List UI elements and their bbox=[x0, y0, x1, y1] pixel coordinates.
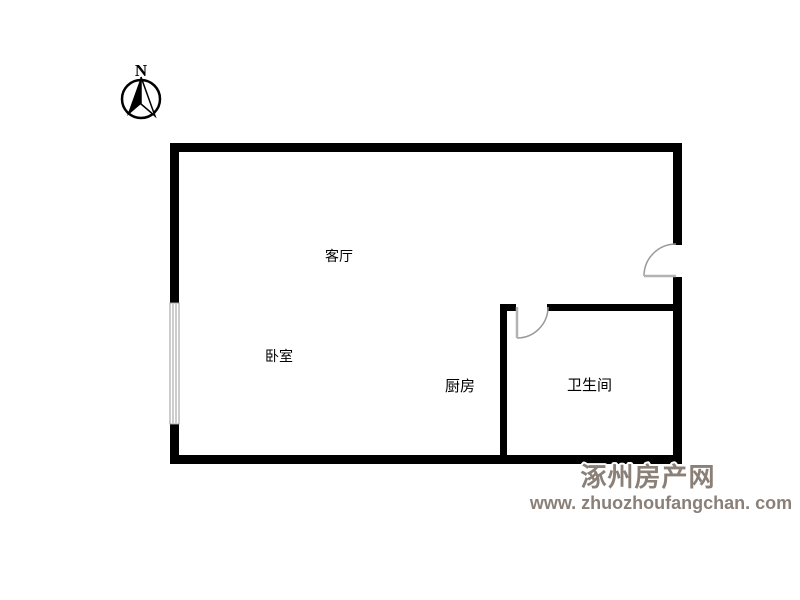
room-label-living-room: 客厅 bbox=[325, 248, 353, 264]
floor-plan-canvas: N bbox=[0, 0, 800, 600]
room-label-bathroom: 卫生间 bbox=[567, 377, 612, 394]
bathroom-wall-horizontal-right bbox=[547, 304, 682, 311]
wall-north bbox=[170, 143, 682, 152]
floor-plan-page: N bbox=[0, 0, 800, 600]
bathroom-door bbox=[517, 307, 548, 338]
watermark-site-url: www. zhuozhoufangchan. com bbox=[529, 493, 792, 513]
wall-west-upper bbox=[170, 143, 179, 303]
room-label-bedroom: 卧室 bbox=[265, 348, 293, 364]
wall-east-upper bbox=[673, 143, 682, 245]
window-frame bbox=[170, 303, 179, 424]
compass: N bbox=[122, 61, 160, 118]
outer-walls bbox=[170, 143, 682, 464]
bathroom-door-arc bbox=[517, 307, 548, 338]
watermark-site-name: 涿州房产网 bbox=[580, 462, 715, 492]
room-label-kitchen: 厨房 bbox=[445, 378, 475, 395]
entry-door-arc bbox=[644, 244, 676, 276]
window bbox=[170, 303, 179, 424]
entry-door bbox=[644, 244, 676, 276]
watermark: 涿州房产网 www. zhuozhoufangchan. com bbox=[529, 462, 792, 513]
bathroom-wall-vertical bbox=[500, 304, 507, 459]
